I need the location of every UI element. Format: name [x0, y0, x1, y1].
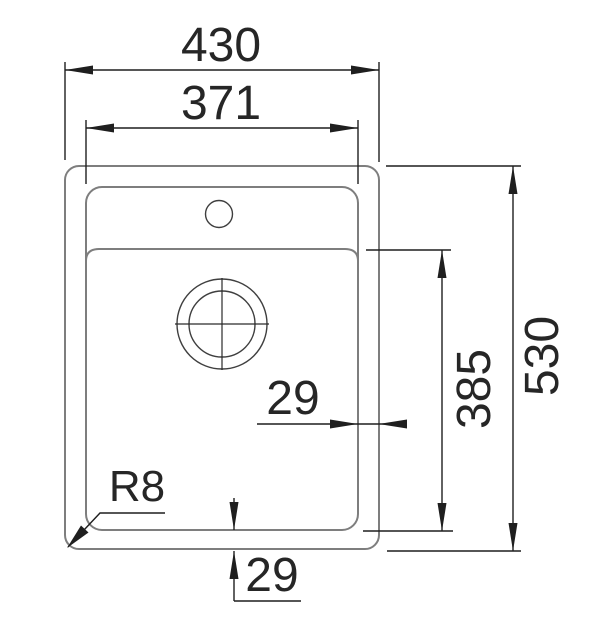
faucet-hole [206, 201, 233, 228]
dimension-label-bottom-rim-offset: 29 [245, 549, 298, 602]
dimension-label-overall-depth: 530 [516, 316, 569, 396]
dimension-label-inner-width: 371 [181, 77, 261, 130]
dimension-label-overall-width: 430 [181, 19, 261, 72]
arrow-left-icon [65, 66, 93, 75]
dimension-label-bowl-depth: 385 [448, 349, 501, 429]
sink-technical-drawing: 430 371 530 385 [0, 0, 613, 641]
arrow-down-icon [438, 503, 447, 531]
arrow-down-icon [509, 523, 518, 551]
arrow-up-icon [438, 250, 447, 278]
drain [175, 278, 269, 370]
dimension-label-side-rim-offset: 29 [266, 372, 319, 425]
arrow-right-icon [330, 420, 358, 429]
drawing-svg: 430 371 530 385 [0, 0, 613, 641]
dimension-side-rim-offset: 29 [257, 372, 407, 429]
dimension-inner-width: 371 [86, 77, 358, 184]
arrow-right-icon [330, 124, 358, 133]
annotation-corner-radius: R8 [67, 462, 165, 548]
dimension-bowl-depth: 385 [363, 250, 501, 531]
annotation-label-corner-radius: R8 [109, 462, 165, 511]
arrow-down-icon [230, 502, 239, 530]
arrow-left-icon [379, 420, 407, 429]
arrow-left-icon [86, 124, 114, 133]
arrow-up-icon [509, 166, 518, 194]
sink-deck-line [86, 249, 358, 261]
arrow-right-icon [351, 66, 379, 75]
